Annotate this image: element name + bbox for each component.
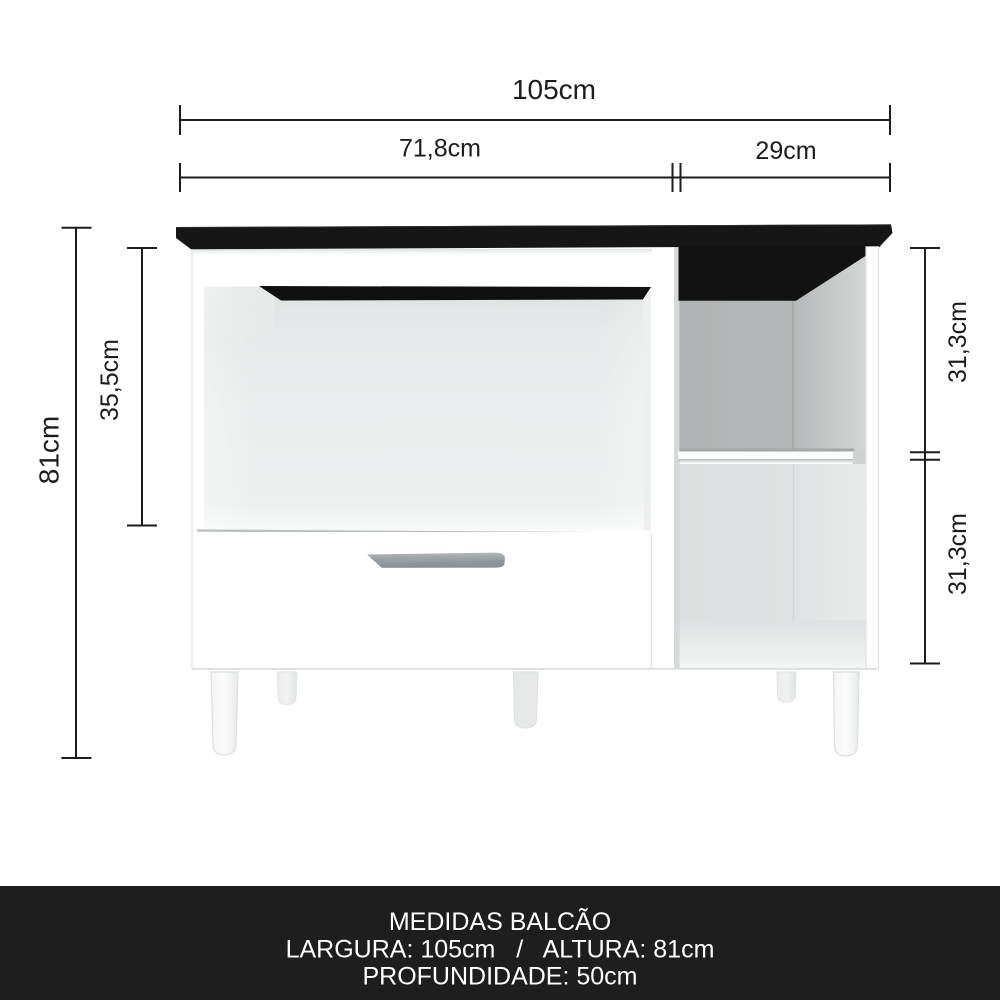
svg-text:31,3cm: 31,3cm [944, 513, 972, 595]
svg-text:35,5cm: 35,5cm [96, 339, 124, 421]
svg-text:31,3cm: 31,3cm [944, 301, 972, 383]
svg-text:LARGURA: 105cm / ALTURA: 8: LARGURA: 105cm / ALTURA: 81cm [286, 935, 715, 963]
svg-text:81cm: 81cm [34, 416, 65, 484]
svg-text:29cm: 29cm [755, 137, 816, 165]
svg-text:PROFUNDIDADE: 50cm: PROFUNDIDADE: 50cm [362, 963, 637, 991]
svg-text:105cm: 105cm [512, 74, 596, 105]
svg-text:MEDIDAS BALCÃO: MEDIDAS BALCÃO [389, 907, 611, 936]
svg-text:71,8cm: 71,8cm [399, 135, 481, 163]
